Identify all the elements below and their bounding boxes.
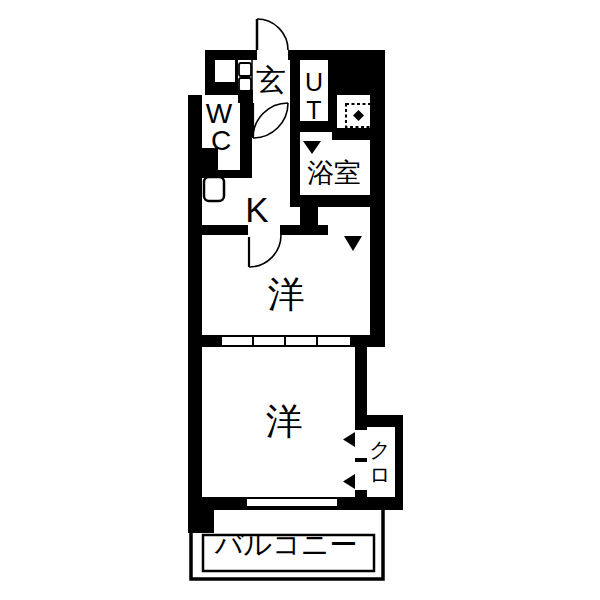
sliding-door-panel xyxy=(286,337,316,345)
wall-segment-k-room1-right xyxy=(280,225,328,235)
wc-label-c: C xyxy=(211,125,231,156)
sliding-door-panel xyxy=(254,337,284,345)
balcony-label: バルコニー xyxy=(214,529,358,560)
closet-door-panel xyxy=(355,462,367,490)
floorplan: 玄 U T W C 浴室 K 洋 洋 ク ロ バルコニー xyxy=(0,0,600,600)
entrance-label: 玄 xyxy=(256,63,286,96)
wall-segment-ut-nook xyxy=(328,60,337,128)
wall-segment-k-room1-left xyxy=(202,225,248,235)
pipe-space-opening xyxy=(215,60,235,82)
western-room-1-label: 洋 xyxy=(268,274,305,315)
closet-label-ku: ク xyxy=(369,438,391,461)
utility-label-t: T xyxy=(306,96,321,124)
wall-segment-left-outer xyxy=(188,95,202,510)
k-room1-door-opening xyxy=(248,235,282,243)
wall-segment-wc-hall xyxy=(240,95,252,178)
utility-label-u: U xyxy=(305,68,323,96)
western-room-2-label: 洋 xyxy=(266,401,303,442)
wall-segment-right-outer xyxy=(370,95,385,347)
wall-segment-genkan-ut xyxy=(290,60,300,195)
bathroom-label: 浴室 xyxy=(307,158,361,188)
wall-segment-corner-block xyxy=(188,497,214,533)
floorplan-canvas: 玄 U T W C 浴室 K 洋 洋 ク ロ バルコニー xyxy=(0,0,600,600)
sliding-door-panel xyxy=(222,337,252,345)
wall-segment-topright-block xyxy=(330,50,385,95)
wall-segment-top-right xyxy=(288,50,330,60)
kitchen-label: K xyxy=(245,190,268,229)
sliding-door-panel xyxy=(318,337,350,345)
closet-door-panel xyxy=(355,430,367,458)
balcony-window-opening xyxy=(247,499,337,506)
closet-label-ro: ロ xyxy=(369,463,391,486)
